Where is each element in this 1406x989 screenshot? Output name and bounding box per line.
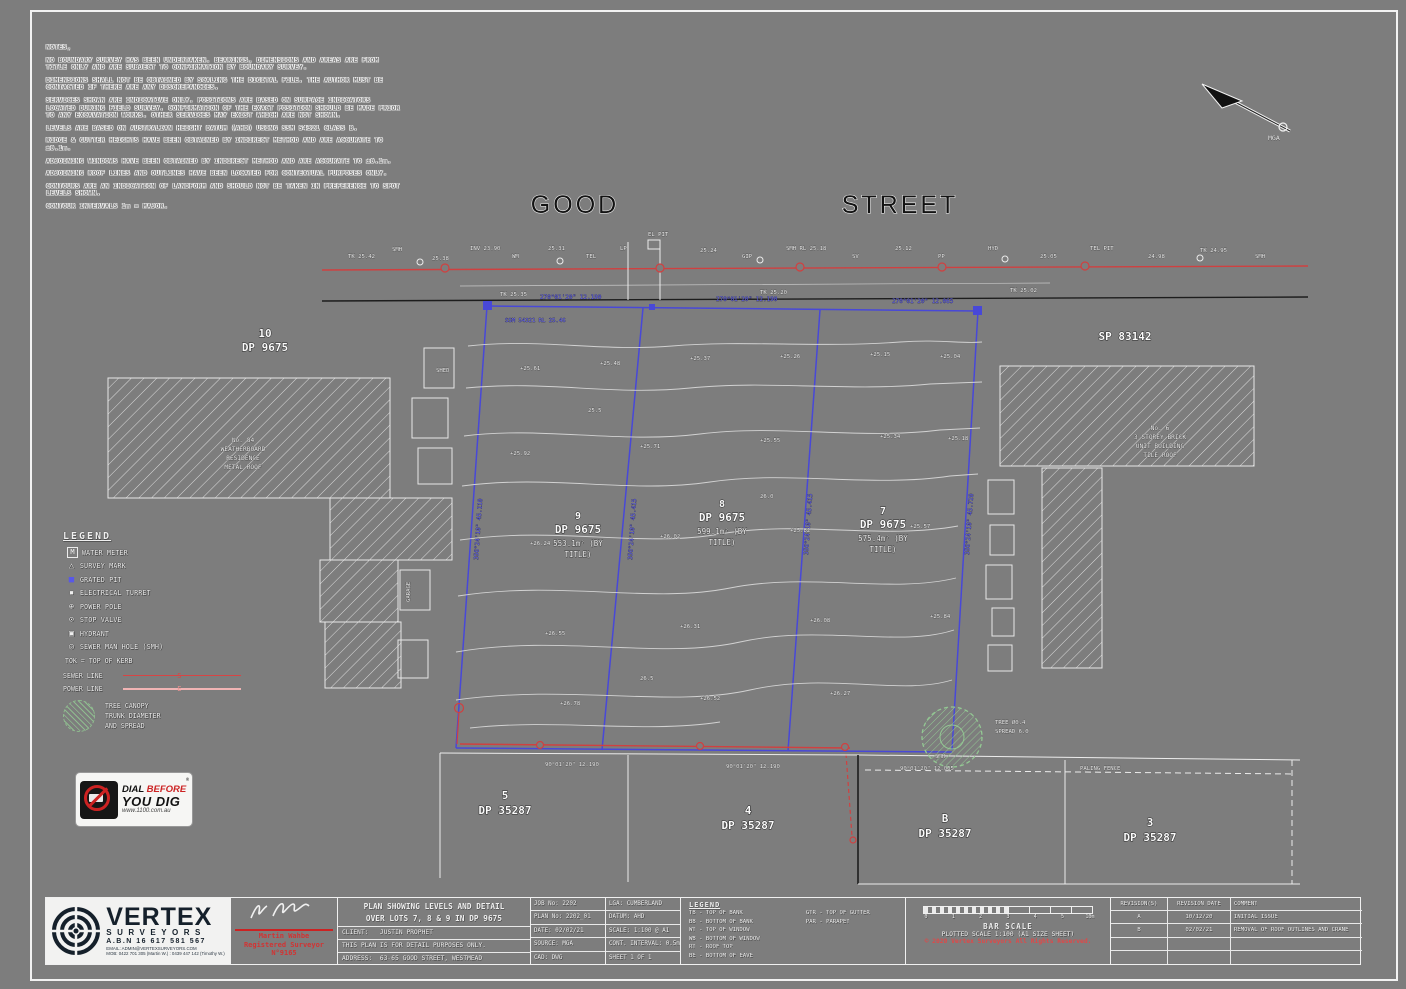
plan-annotation: +25.84 [930,614,951,620]
bar-tick: 0 [919,914,933,920]
legend-item: ■GRATED PIT [63,573,241,587]
lot9-dp: DP 9675 [555,523,601,536]
plotted-scale: PLOTTED SCALE 1:100 (A1 SIZE SHEET) [906,931,1110,938]
lot4-number: 4 [745,804,752,817]
grated-pit-symbol [649,304,655,310]
plan-annotation: EL PIT [648,232,669,238]
client-row: CLIENT: JUSTIN PROPHET [338,926,530,939]
legend-item: ⊕POWER POLE [63,600,241,614]
grated-pit-symbol [483,301,492,310]
revision-row [1111,951,1362,964]
abbrev-item: TB - TOP OF BANK [689,909,806,918]
annotation-layer: TK 25.42SMH25.38INV 23.90WM25.31TELLPEL … [348,232,1265,772]
electrical-turret-icon: ▪ [63,588,80,598]
bar-tick: 10m [1083,914,1097,920]
abbrev-item: BE - BOTTOM OF EAVE [689,952,806,961]
bar-tick: 5 [1056,914,1070,920]
water-meter-icon: M [67,547,78,558]
plan-annotation: INV 23.90 [470,246,500,252]
plan-annotation: GIP [742,254,753,260]
job-no-field: JOB No: 2202 [531,898,605,911]
lot7-number: 7 [880,506,886,517]
plan-annotation: +25.92 [510,451,530,457]
plan-annotation: 25.24 [700,248,717,254]
tree-legend-line: TRUNK DIAMETER [105,711,161,721]
neighbour-right-label: No. 6 [1151,425,1170,432]
abbrev-item: BB - BOTTOM OF BANK [689,918,806,927]
lot8-dp: DP 9675 [699,511,745,524]
plan-title-cell: PLAN SHOWING LEVELS AND DETAIL OVER LOTS… [338,898,531,964]
plan-annotation: TK 24.95 [1200,248,1227,254]
plan-annotation: 356°24'10" 45.415 [627,498,638,560]
plan-annotation: +25.37 [690,356,710,362]
legend-sewer-line: SEWER LINE S [63,669,241,682]
street-name-good: GOOD [531,191,619,219]
plan-annotation: 356°24'10" 45.720 [964,493,975,555]
bar-tick: 3 [1001,914,1015,920]
no-dig-icon [80,781,118,819]
plan-annotation: 270°01'20" 12.065 [892,298,954,305]
plan-annotation: +25.55 [760,438,780,444]
title-block: VERTEX SURVEYORS A.B.N 16 617 581 567 EM… [45,897,1361,965]
address-row: ADDRESS: 63-65 GOOD STREET, WESTMEAD [338,952,530,965]
lot4-dp: DP 35287 [722,819,775,832]
neighbour-left-label: WEATHERBOARD [221,446,266,453]
plan-annotation: +26.02 [660,534,680,540]
revision-row: A 10/12/20 INITIAL ISSUE [1111,911,1362,924]
legend-item: ⊙STOP VALVE [63,614,241,628]
abbrev-item: RT - ROOF TOP [689,943,806,952]
plan-annotation: +25.48 [600,361,621,367]
plan-annotation: +26.52 [700,696,720,702]
legend-item: ◎SEWER MAN HOLE (SMH) [63,641,241,655]
plan-annotation: SPREAD 6.0 [995,729,1029,735]
purpose-row: THIS PLAN IS FOR DETAIL PURPOSES ONLY. [338,939,530,952]
neighbour-right-label: TILE ROOF [1143,452,1177,459]
lot9-area: TITLE) [564,550,591,559]
legend-item: MWATER METER [63,546,241,560]
plan-annotation: +25.71 [640,444,660,450]
legend-panel: LEGEND MWATER METER △SURVEY MARK ■GRATED… [63,531,241,732]
plan-annotation: 356°24'10" 45.110 [473,498,484,560]
lotB-number: B [942,812,949,825]
legend-item: ▣HYDRANT [63,627,241,641]
surveyor-role: Registered Surveyor [231,941,337,950]
plan-annotation: 90°01'20" 12.190 [545,762,599,768]
surveyor-signature-cell: Martin Wahbe Registered Surveyor N°9165 [231,898,338,964]
plan-annotation: 24.98 [1148,254,1165,260]
dial-before-you-dig-logo: DIAL BEFORE YOU DIG www.1100.com.au ® [75,772,193,827]
fields-column-1: JOB No: 2202 PLAN No: 2202_01 DATE: 02/0… [531,898,606,964]
plan-annotation: 25.31 [548,246,565,252]
datum-field: DATUM: AHD [606,911,680,924]
plan-drawing: GOOD STREET MGA [0,0,1406,989]
bar-scale-graphic [923,906,1093,914]
lot3-dp: DP 35287 [1124,831,1177,844]
neighbour-right-label: 3 STOREY BRICK [1134,434,1186,441]
sewer-line-sample: S [123,675,241,676]
plan-annotation: SMH [392,247,402,253]
abbrev-title: LEGEND [689,901,905,909]
lot9-area: 553.1m² (BY [553,539,603,548]
plan-annotation: +26.08 [810,618,831,624]
plan-annotation: 90°01'20" 12.065 [900,766,954,772]
plan-no-field: PLAN No: 2202_01 [531,911,605,924]
fields-column-2: LGA: CUMBERLAND DATUM: AHD SCALE: 1:100 … [606,898,681,964]
plan-annotation: 26.0 [760,494,773,500]
plan-annotation: TREE Ø0.4 [995,719,1026,726]
plan-annotation: TEL [586,254,597,260]
grated-pit-icon: ■ [63,575,80,585]
plan-annotation: TK 25.42 [348,254,375,260]
stop-valve-icon: ⊙ [63,615,80,625]
revision-table: REVISION(S) REVISION DATE COMMENT A 10/1… [1111,898,1362,964]
lot7-area: TITLE) [869,545,896,554]
plan-annotation: +25.61 [520,366,540,372]
plan-title-line2: OVER LOTS 7, 8 & 9 IN DP 9675 [338,913,530,925]
plan-annotation: SMH [1255,254,1265,260]
plan-annotation: +26.55 [545,631,565,637]
hydrant-icon: ▣ [63,629,80,639]
copyright-notice: © 2020 Vertex Surveyors All Rights Reser… [906,938,1110,945]
street-name-street: STREET [842,191,959,219]
dbyd-you-dig: YOU DIG [122,795,186,808]
plan-annotation: TK 25.02 [1010,288,1037,294]
sewer-line [455,704,857,844]
survey-mark-icon: △ [63,561,80,571]
lot9-number: 9 [575,511,581,522]
plan-annotation: WM [512,254,519,260]
power-line-sample: E [123,688,241,690]
vertex-contact: MOB: 0422 701 305 (Martin W.) : 0439 447… [106,951,224,956]
plan-annotation: 270°01'20" 12.190 [540,294,602,301]
plan-annotation: 25.12 [895,246,912,252]
signature-scribble [239,898,329,924]
plan-annotation: PALING FENCE [1080,766,1121,772]
vertex-abn: A.B.N 16 617 581 567 [106,937,224,946]
lot8-number: 8 [719,499,725,510]
abbrev-item: WB - BOTTOM OF WINDOW [689,935,806,944]
plan-annotation: SV [852,254,859,260]
legend-tree: TREE CANOPY TRUNK DIAMETER AND SPREAD [63,700,241,732]
vertex-logo-cell: VERTEX SURVEYORS A.B.N 16 617 581 567 EM… [46,898,231,964]
tree-legend-line: TREE CANOPY [105,701,161,711]
neighbour-right-label: UNIT BUILDING [1136,443,1185,450]
lot8-area: TITLE) [708,538,735,547]
plan-annotation: TEL PIT [1090,246,1114,252]
plan-annotation: +25.15 [870,352,890,358]
plan-annotation: 25.05 [1040,254,1057,260]
revision-header-row: REVISION(S) REVISION DATE COMMENT [1111,898,1362,911]
sewer-manhole-icon: ◎ [63,642,80,652]
abbrev-item: GTR - TOP OF GUTTER [806,909,905,918]
abbrev-item: WT - TOP OF WINDOW [689,926,806,935]
bar-tick: 2 [974,914,988,920]
revision-row: B 02/02/21 REMOVAL OF ROOF OUTLINES AND … [1111,924,1362,937]
lot5-number: 5 [502,789,509,802]
tree-icon [63,700,95,732]
scale-field: SCALE: 1:100 @ A1 [606,925,680,938]
date-field: DATE: 02/02/21 [531,925,605,938]
sheet-field: SHEET 1 OF 1 [606,952,680,965]
plan-annotation: +25.18 [948,436,969,442]
abbreviation-legend-cell: LEGEND TB - TOP OF BANK BB - BOTTOM OF B… [681,898,906,964]
registered-mark: ® [186,777,189,783]
vertex-logo-icon [51,906,101,956]
neighbour-left-label: No. 84 [232,437,255,444]
plan-annotation: GARAGE [406,581,412,602]
cad-field: CAD: DWG [531,952,605,965]
north-arrow-label: MGA [1268,134,1280,142]
lot10-number: 10 [258,327,271,340]
plan-annotation: 25.38 [432,256,449,262]
tree-legend-line: AND SPREAD [105,721,161,731]
source-field: SOURCE: MGA [531,938,605,951]
surveyor-name: Martin Wahbe [231,932,337,941]
sp-label: SP 83142 [1099,330,1152,343]
plan-annotation: 270°01'20" 12.190 [716,296,778,303]
lot5-dp: DP 35287 [479,804,532,817]
lot7-dp: DP 9675 [860,518,906,531]
legend-note: TOK = TOP OF KERB [65,657,241,665]
plan-annotation: 90°01'20" 12.190 [726,764,780,770]
bar-scale-caption: BAR SCALE [906,922,1110,931]
lot10-dp: DP 9675 [242,341,288,354]
surveyor-number: N°9165 [231,949,337,958]
plan-annotation: +26.24 [530,541,551,547]
abbrev-item: PAR - PARAPET [806,918,905,927]
bar-scale-cell: 0 1 2 3 4 5 10m BAR SCALE PLOTTED SCALE … [906,898,1111,964]
plan-annotation: +25.57 [910,524,930,530]
grated-pit-symbol [973,306,982,315]
plan-annotation: +25.34 [880,434,901,440]
plan-annotation: SMH RL 25.18 [786,246,827,252]
legend-item: ▪ELECTRICAL TURRET [63,587,241,601]
plan-annotation: TK 25.35 [500,292,527,298]
plan-annotation: 25.5 [588,408,601,414]
plan-annotation: SSM 54321 RL 25.46 [505,318,566,324]
north-arrow: MGA [1202,84,1290,142]
plan-annotation: 26.5 [640,676,653,682]
plan-annotation: +25.26 [780,354,800,360]
neighbour-left-label: METAL ROOF [224,464,262,471]
lga-field: LGA: CUMBERLAND [606,898,680,911]
vertex-brand: VERTEX [106,906,224,928]
power-pole-icon: ⊕ [63,602,80,612]
legend-title: LEGEND [63,531,241,542]
plan-annotation: +25.82 [790,528,810,534]
plan-annotation: LP [620,246,627,252]
revision-row [1111,938,1362,951]
plan-annotation: +26.31 [680,624,700,630]
tree-symbol [922,707,982,767]
legend-item: △SURVEY MARK [63,560,241,574]
lotB-dp: DP 35287 [919,827,972,840]
plan-annotation: +26.78 [560,701,581,707]
lot8-area: 599.1m² (BY [697,527,747,536]
plan-title-line1: PLAN SHOWING LEVELS AND DETAIL [338,901,530,913]
plan-annotation: +26.27 [830,691,850,697]
plan-annotation: HYD [988,246,999,252]
adjoining-building-right [986,366,1254,671]
legend-power-line: POWER LINE E [63,682,241,695]
plan-annotation: +25.04 [940,354,961,360]
plan-annotation: SHED [436,368,450,374]
lot7-area: 575.4m² (BY [858,534,908,543]
survey-plan-sheet: NOTES, NO BOUNDARY SURVEY HAS BEEN UNDER… [0,0,1406,989]
lot3-number: 3 [1147,816,1154,829]
neighbour-left-label: RESIDENCE [226,455,260,462]
plan-annotation: PP [938,254,945,260]
plan-annotation: SMH [935,754,945,760]
rear-lot-lines [440,753,1300,884]
contour-interval-field: CONT. INTERVAL: 0.5m [606,938,680,951]
plan-annotation: 356°24'10" 45.415 [803,493,814,555]
bar-tick: 4 [1028,914,1042,920]
signature-divider [235,929,333,931]
bar-tick: 1 [946,914,960,920]
